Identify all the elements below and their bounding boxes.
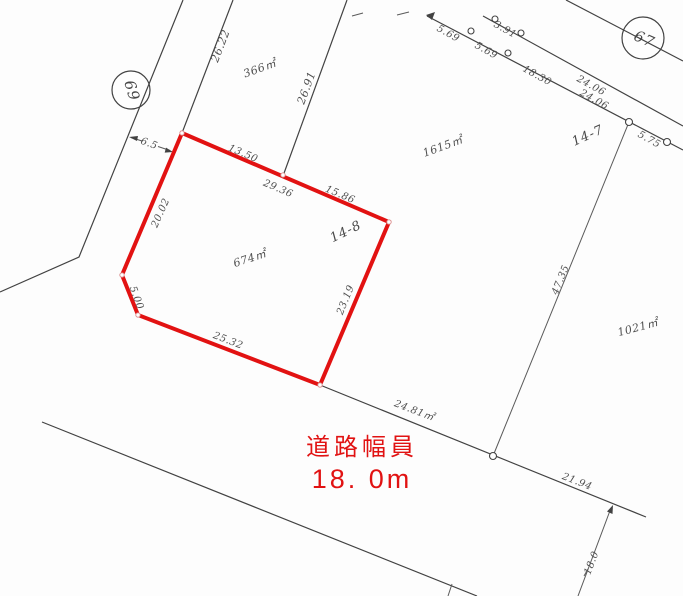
- survey-point-67-line: [566, 0, 683, 61]
- parcel-corner-point: [387, 220, 391, 224]
- survey-point: [664, 139, 671, 146]
- offset-arrowhead-left: [129, 136, 138, 141]
- area-label-366: 366㎡: [242, 56, 280, 80]
- offset-arrowhead-right: [165, 148, 173, 153]
- road-width-annotation: 道路幅員 18. 0m: [250, 433, 474, 497]
- parcel-corner-point: [281, 173, 285, 177]
- area-label-1615: 1615㎡: [421, 133, 466, 160]
- parcel-corner-point: [318, 383, 322, 387]
- survey-point: [490, 453, 497, 460]
- survey-point: [505, 50, 511, 56]
- dimension-label: 24.81㎡: [392, 397, 437, 424]
- dimension-label: 26.22: [208, 28, 233, 65]
- scan-dash: [397, 12, 409, 15]
- dimension-label: 5.69: [473, 40, 500, 61]
- survey-map: 69 67 14-8 14-7 366㎡ 1615㎡ 674㎡ 1021㎡ 26…: [0, 0, 683, 596]
- scan-dash: [352, 13, 363, 16]
- road-width-annotation-title: 道路幅員: [250, 433, 474, 463]
- dimension-label: 18.30: [521, 64, 554, 89]
- survey-point: [518, 30, 524, 36]
- parcel-366-west-boundary: [182, 0, 233, 133]
- dimension-label: 18.0: [583, 550, 602, 577]
- parcel-corner-point: [120, 273, 124, 277]
- parcel-366-east-boundary: [283, 0, 347, 176]
- survey-point: [468, 28, 474, 34]
- road-width-annotation-value: 18. 0m: [250, 463, 474, 497]
- lot-number-14-7: 14-7: [570, 122, 606, 149]
- parcel-corner-point: [136, 313, 140, 317]
- dimension-label: 6.5: [139, 136, 159, 152]
- area-label-1021: 1021㎡: [616, 315, 661, 339]
- dimension-label: 3.91: [492, 19, 519, 40]
- survey-point: [626, 119, 633, 126]
- parcel-corner-point: [180, 131, 184, 135]
- dimension-label: 13.50: [227, 143, 260, 165]
- survey-map-canvas: 69 67 14-8 14-7 366㎡ 1615㎡ 674㎡ 1021㎡ 26…: [0, 0, 683, 596]
- lot-number-14-8: 14-8: [328, 218, 364, 246]
- boundary-arrowhead: [426, 12, 435, 20]
- area-label-674: 674㎡: [232, 247, 270, 270]
- road-width-arrowhead: [607, 505, 613, 514]
- dimension-label: 47.35: [550, 264, 572, 298]
- dimension-label: 23.19: [335, 283, 357, 317]
